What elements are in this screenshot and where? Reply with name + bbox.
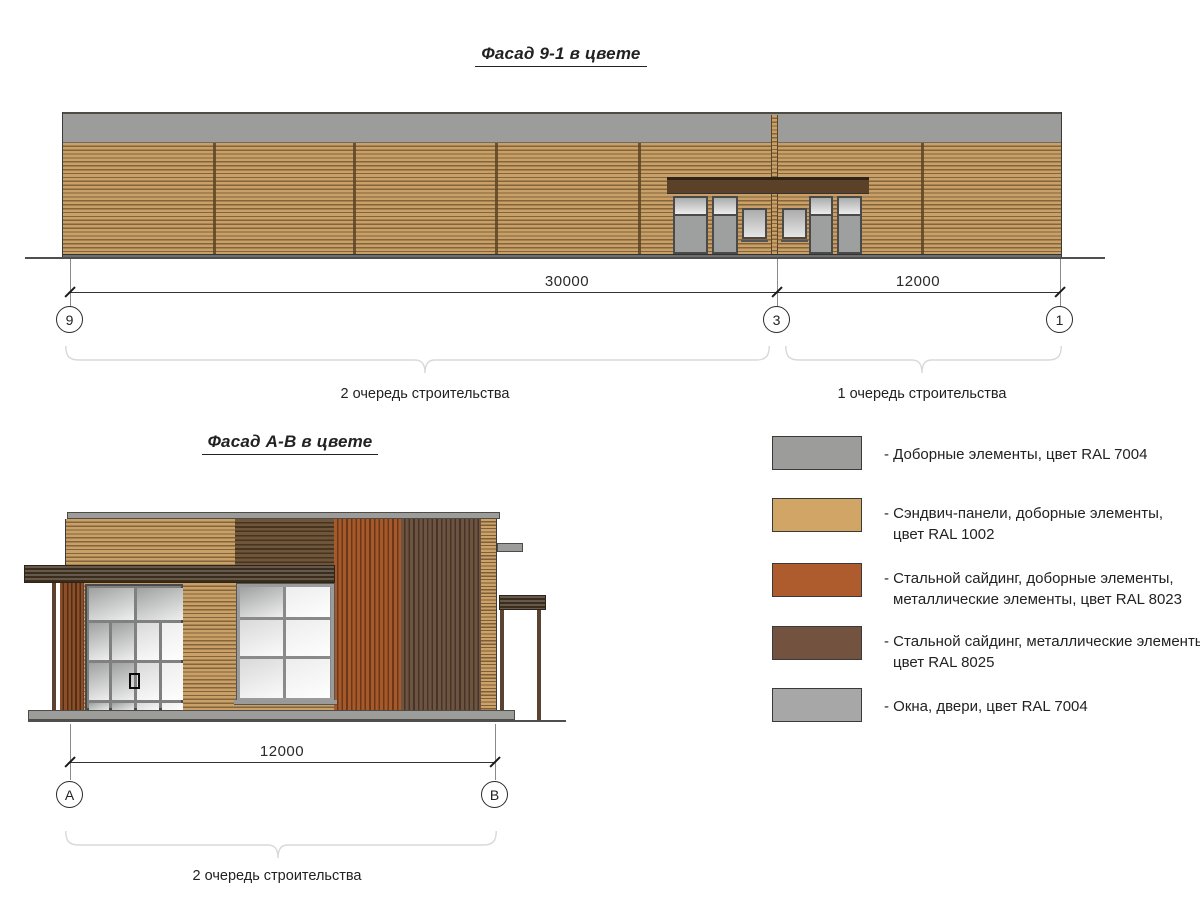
panel-joint xyxy=(353,143,356,254)
door-transom xyxy=(675,198,706,216)
glass-pane xyxy=(240,620,283,656)
glass-pane xyxy=(89,588,134,620)
grid-marker-a: А xyxy=(56,781,83,808)
corner-strip-ral1002 xyxy=(481,519,497,710)
phase-brace-right xyxy=(785,346,1062,376)
glass-pane xyxy=(240,659,283,698)
porch-post xyxy=(537,610,541,720)
legend-label-line: цвет RAL 1002 xyxy=(884,524,1163,545)
glass-pane xyxy=(240,587,283,617)
grid-extension-line xyxy=(70,724,71,780)
legend-swatch-ral8023 xyxy=(772,563,862,597)
facade-a-b-title: Фасад А-В в цвете xyxy=(202,432,379,455)
small-window xyxy=(742,208,767,239)
legend-label: - Окна, двери, цвет RAL 7004 xyxy=(884,696,1088,717)
window-sill xyxy=(234,700,337,705)
ground-line xyxy=(25,257,1105,259)
glass-pane xyxy=(286,620,330,656)
grid-marker-b: В xyxy=(481,781,508,808)
legend-swatch-ral8025 xyxy=(772,626,862,660)
legend-label: - Доборные элементы, цвет RAL 7004 xyxy=(884,444,1147,465)
large-window xyxy=(237,584,334,701)
legend-label-line: - Стальной сайдинг, доборные элементы, xyxy=(884,568,1182,589)
legend-label-line: - Стальной сайдинг, металлические элемен… xyxy=(884,631,1200,652)
glass-pane xyxy=(286,659,330,698)
panel-joint xyxy=(495,143,498,254)
facade-9-1-title-wrap: Фасад 9-1 в цвете xyxy=(411,44,711,67)
dimension-value-12000: 12000 xyxy=(868,273,968,290)
grid-extension-line xyxy=(495,724,496,780)
phase-brace-bottom xyxy=(65,831,497,861)
entrance-canopy xyxy=(24,565,335,583)
panel-joint xyxy=(638,143,641,254)
facade-9-1-title: Фасад 9-1 в цвете xyxy=(475,44,646,67)
canopy-post xyxy=(52,583,56,712)
panel-joint xyxy=(213,143,216,254)
plinth-ral7004 xyxy=(28,710,515,720)
phase-2-label: 2 очередь строительства xyxy=(127,868,427,884)
grid-extension-line xyxy=(70,259,71,309)
entrance-door xyxy=(809,196,833,254)
phase-brace-left xyxy=(65,346,770,376)
glass-pane xyxy=(162,623,183,660)
pilaster-siding-ral8023 xyxy=(60,583,84,712)
door-glass-pane xyxy=(137,623,159,660)
legend-swatch-ral7004 xyxy=(772,436,862,470)
door-glass-pane xyxy=(112,623,134,660)
glazed-entrance xyxy=(85,584,183,710)
grid-marker-9: 9 xyxy=(56,306,83,333)
glass-pane xyxy=(89,663,109,700)
glass-pane xyxy=(89,623,109,660)
facade-a-b-title-wrap: Фасад А-В в цвете xyxy=(140,432,440,455)
ground-line xyxy=(28,720,566,722)
facade-9-1-elevation xyxy=(62,112,1062,258)
steel-siding-ral8025 xyxy=(401,519,481,710)
parapet-panel-ral1002 xyxy=(65,519,235,567)
grid-extension-line xyxy=(1060,259,1061,309)
grid-extension-line xyxy=(777,259,778,309)
phase-1-label: 1 очередь строительства xyxy=(772,386,1072,402)
steel-siding-ral8023 xyxy=(334,519,401,710)
entrance-door xyxy=(673,196,708,254)
entrance-door xyxy=(712,196,738,254)
legend-label-line: цвет RAL 8025 xyxy=(884,652,1200,673)
small-window xyxy=(782,208,807,239)
side-bracket xyxy=(497,543,523,552)
legend-swatch-ral1002 xyxy=(772,498,862,532)
phase-2-label: 2 очередь строительства xyxy=(275,386,575,402)
dimension-line xyxy=(70,292,1060,293)
legend-swatch-windows xyxy=(772,688,862,722)
grid-marker-3: 3 xyxy=(763,306,790,333)
facade-drawing-sheet: { "titles": { "facade91": "Фасад 9-1 в ц… xyxy=(0,0,1200,900)
porch-post xyxy=(500,610,504,720)
dimension-value-12000: 12000 xyxy=(232,743,332,760)
door-transom xyxy=(839,198,860,216)
legend-label: - Стальной сайдинг, металлические элемен… xyxy=(884,631,1200,673)
glass-pane xyxy=(162,663,183,700)
door-glass-pane xyxy=(137,663,159,700)
door-handle xyxy=(129,673,140,689)
legend-label-line: металлические элементы, цвет RAL 8023 xyxy=(884,589,1182,610)
legend-label: - Стальной сайдинг, доборные элементы, м… xyxy=(884,568,1182,610)
glass-pane xyxy=(137,588,183,620)
entrance-canopy xyxy=(667,177,869,194)
dimension-value-30000: 30000 xyxy=(517,273,617,290)
parapet-panel-ral8025 xyxy=(235,519,334,567)
door-transom xyxy=(811,198,831,216)
panel-joint xyxy=(921,143,924,254)
roof-cap-ral7004 xyxy=(67,512,500,519)
side-porch-roof xyxy=(499,595,546,610)
legend-label-line: - Сэндвич-панели, доборные элементы, xyxy=(884,503,1163,524)
parapet-band-ral7004 xyxy=(63,112,1061,143)
dimension-line xyxy=(70,762,495,763)
entrance-door xyxy=(837,196,862,254)
legend-label: - Сэндвич-панели, доборные элементы, цве… xyxy=(884,503,1163,545)
door-transom xyxy=(714,198,736,216)
grid-marker-1: 1 xyxy=(1046,306,1073,333)
glass-pane xyxy=(286,587,330,617)
